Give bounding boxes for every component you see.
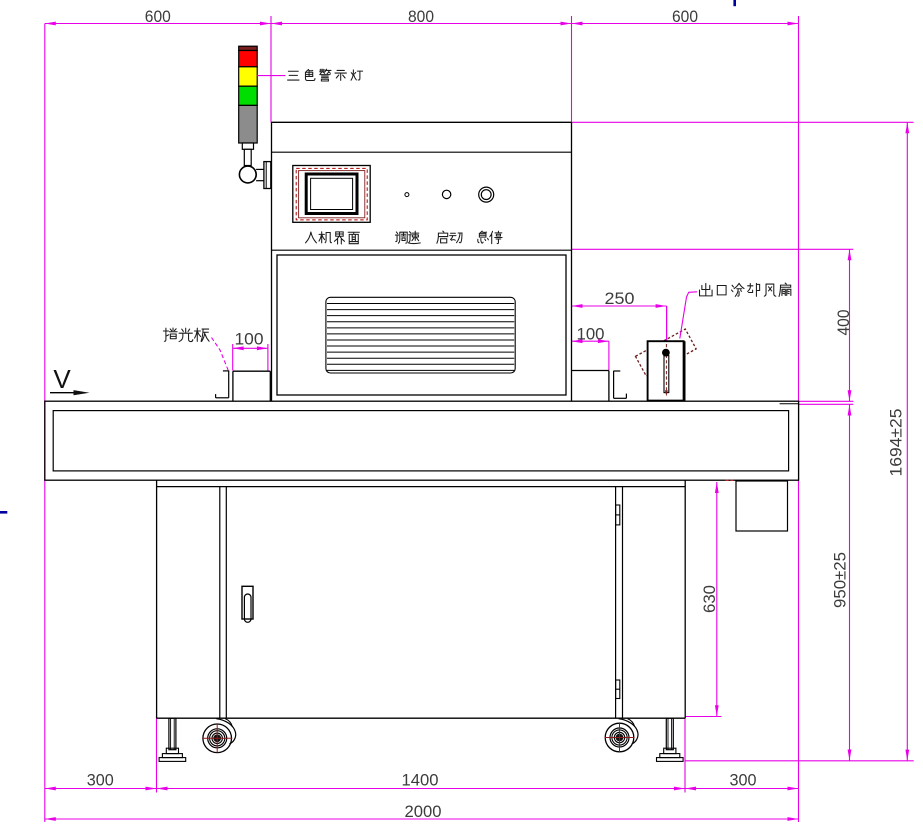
svg-text:600: 600 <box>672 7 698 26</box>
svg-text:800: 800 <box>408 7 434 26</box>
svg-text:300: 300 <box>730 771 757 790</box>
svg-text:600: 600 <box>145 7 171 26</box>
svg-text:1694±25: 1694±25 <box>887 409 906 477</box>
svg-text:1400: 1400 <box>402 771 439 790</box>
svg-text:300: 300 <box>87 771 114 790</box>
svg-text:100: 100 <box>577 325 605 344</box>
svg-text:250: 250 <box>605 289 635 308</box>
svg-text:630: 630 <box>700 585 719 613</box>
svg-text:100: 100 <box>235 330 264 349</box>
svg-text:V: V <box>53 364 71 394</box>
svg-text:2000: 2000 <box>405 802 442 821</box>
svg-text:400: 400 <box>834 310 853 336</box>
svg-text:950±25: 950±25 <box>831 552 850 608</box>
